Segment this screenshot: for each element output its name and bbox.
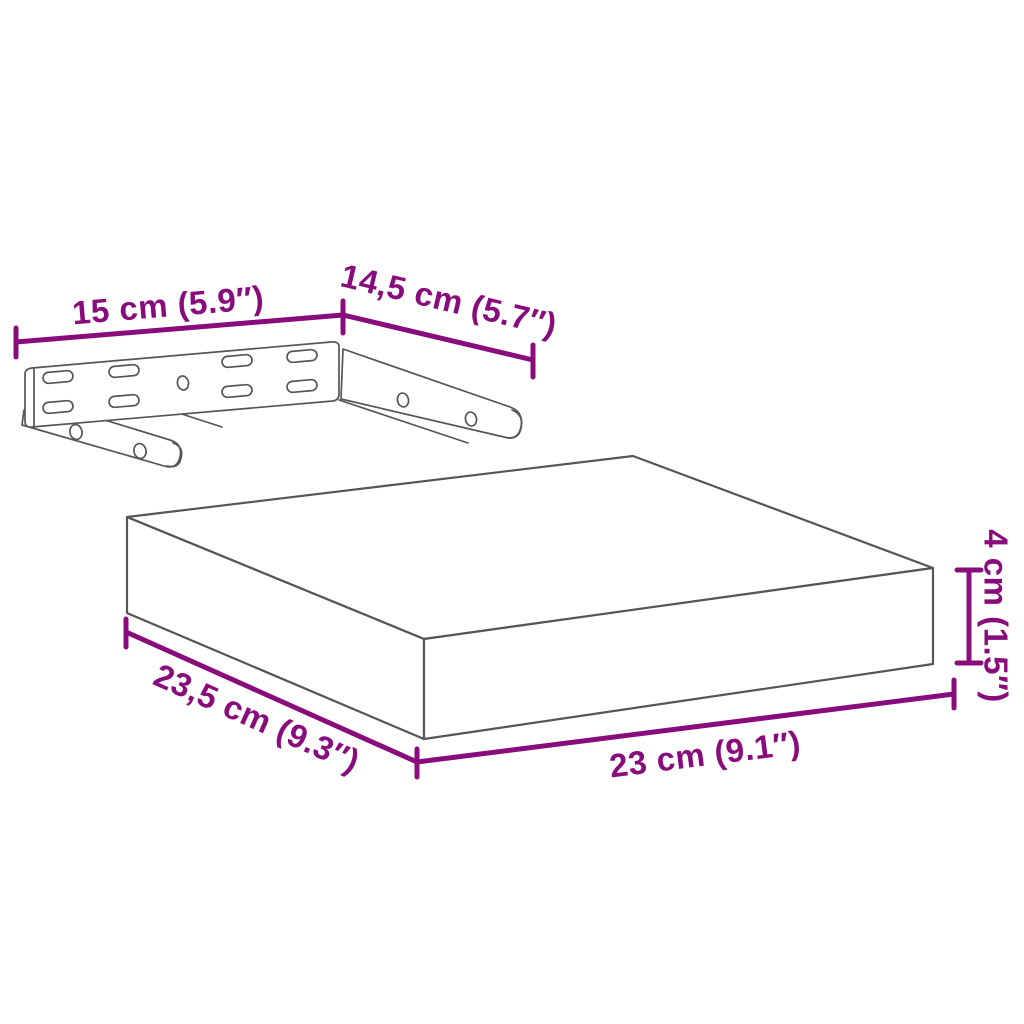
label-shelf-height: 4 cm (1.5″) <box>978 529 1015 703</box>
bracket-slot <box>43 370 74 384</box>
product-dimension-diagram: 15 cm (5.9″) 14,5 cm (5.7″) 23,5 cm (9.3… <box>0 0 1024 1024</box>
wall-bracket <box>22 342 522 467</box>
bracket-right-prong <box>341 349 522 438</box>
bracket-slot <box>287 349 318 363</box>
bracket-slot <box>109 364 140 378</box>
bracket-slot <box>222 384 253 398</box>
diagram-canvas: 15 cm (5.9″) 14,5 cm (5.7″) 23,5 cm (9.3… <box>0 0 1024 1024</box>
bracket-slot <box>287 379 318 393</box>
bracket-slot <box>109 394 140 408</box>
bracket-slot <box>222 354 253 368</box>
label-bracket-depth: 14,5 cm (5.7″) <box>337 257 561 344</box>
bracket-slot <box>43 400 74 414</box>
